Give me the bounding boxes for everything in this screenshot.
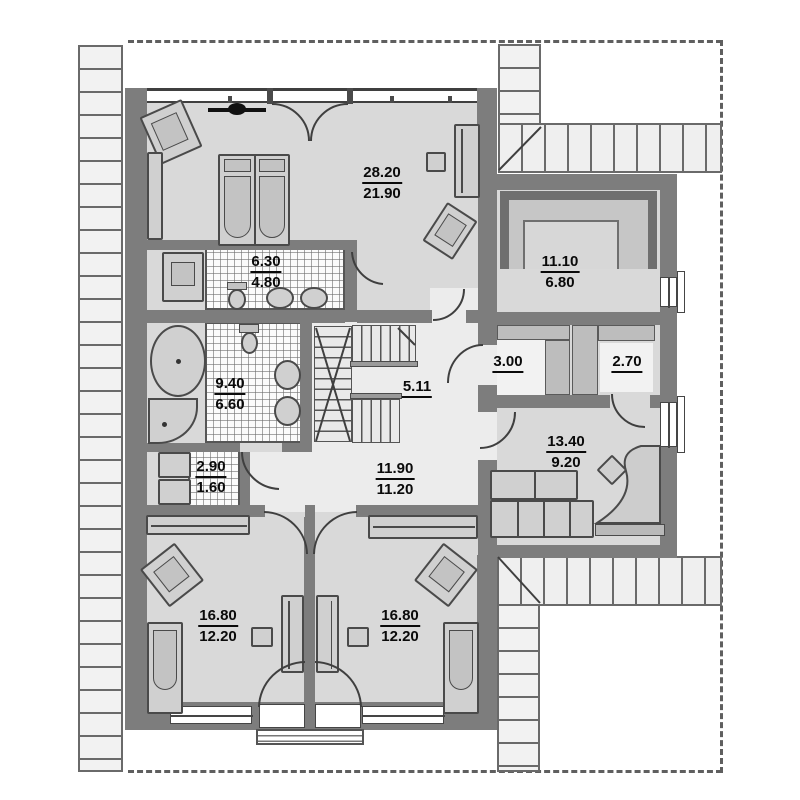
wc-cabinet-1 [158, 452, 191, 478]
stair-flight-lower [352, 399, 400, 443]
wall-light-lens [228, 103, 246, 115]
window-frame-line [668, 403, 670, 448]
sideboard-line [151, 525, 247, 527]
wardrobe-300-right [545, 340, 570, 395]
roof-strip-bottom-horizontal [497, 556, 722, 606]
label-area: 13.40 [546, 432, 586, 453]
wall-right-upper [477, 88, 497, 190]
label-wc: 2.90 1.60 [195, 457, 226, 497]
double-bed [218, 154, 290, 246]
wardrobe-bedroom-top [147, 152, 163, 240]
label-value: 12.20 [199, 628, 237, 645]
wall-bath-top-right [345, 240, 357, 322]
label-area: 2.90 [195, 457, 226, 478]
stair-winder [314, 326, 352, 442]
label-area: 5.11 [402, 377, 432, 398]
wall-spine-2 [357, 310, 432, 323]
desk-edge-line [331, 601, 333, 669]
wall-wing-right-1 [660, 174, 677, 277]
window-frame-line [668, 278, 670, 308]
desk-front-1340 [595, 524, 665, 536]
label-bedroom-left: 16.80 12.20 [198, 606, 238, 646]
wc-cabinet-2 [158, 479, 191, 505]
wall-left [125, 88, 147, 730]
shelf-270-top [598, 325, 655, 341]
mullion-tick-3 [448, 96, 452, 103]
armchair-cushion [428, 556, 464, 592]
bed-pillow-right [259, 159, 285, 172]
label-closet-270: 2.70 [611, 352, 642, 373]
wall-wing-bottom [497, 545, 677, 558]
label-area: 3.00 [492, 352, 523, 373]
wall-bedrooms-divider [304, 517, 315, 707]
wall-bath-main-right [300, 322, 312, 445]
sink-top-2 [300, 287, 328, 309]
wall-hall-bottom-2 [305, 505, 315, 517]
wall-1110-bottom [497, 312, 660, 325]
wall-wing-top [497, 174, 677, 190]
label-bath-top: 6.30 4.80 [250, 252, 281, 292]
label-bedroom-right: 16.80 12.20 [380, 606, 420, 646]
washer-drum [171, 262, 195, 286]
roof-outline-top [128, 40, 722, 43]
sofa-seam [543, 502, 545, 536]
label-area: 2.70 [611, 352, 642, 373]
sideboard-bedroom-right [368, 515, 478, 539]
wall-closet-bottom-2 [650, 395, 660, 408]
label-area: 9.40 [214, 374, 245, 395]
desk-edge-line [461, 129, 463, 193]
label-closet-300: 3.00 [492, 352, 523, 373]
desk-edge-line [288, 601, 290, 669]
door-gap-1340 [478, 412, 497, 460]
stair-rail-upper [350, 361, 418, 367]
bathtub-drain [176, 359, 181, 364]
label-area: 11.90 [376, 459, 415, 480]
sofa-seat-1340 [490, 500, 594, 538]
window-frame-line [363, 715, 445, 717]
window-sill-1110 [677, 271, 685, 313]
label-area: 28.20 [362, 163, 402, 184]
sideboard-line [373, 526, 475, 528]
chair-bedroom-left [251, 627, 273, 647]
label-room-1340: 13.40 9.20 [546, 432, 586, 472]
label-value: 6.80 [545, 274, 574, 291]
desk-living [454, 124, 480, 198]
floor-plan: 28.20 21.90 6.30 4.80 11.10 6.80 9.40 6.… [0, 0, 800, 800]
armchair-cushion [151, 112, 189, 151]
wall-spine-3 [466, 310, 480, 323]
window-wall-top [147, 88, 477, 103]
window-frame-line [171, 715, 253, 717]
wall-wing-left-1 [478, 190, 497, 345]
wardrobe-270-left [572, 325, 598, 395]
bed-bedroom-right [443, 622, 479, 714]
wall-wing-left-2 [478, 385, 497, 412]
bed-blanket [153, 630, 177, 690]
label-value: 11.20 [377, 481, 414, 498]
bed-blanket-right [259, 176, 285, 238]
label-value: 4.80 [251, 274, 280, 291]
wall-bath-main-bottom-2 [282, 443, 312, 452]
label-stair: 5.11 [402, 377, 432, 398]
balcony-door-right [315, 704, 361, 728]
sofa-seam [569, 502, 571, 536]
balcony-door-left [259, 704, 305, 728]
roof-eave-left [78, 45, 123, 772]
window-1340 [660, 402, 677, 447]
sideboard-bedroom-left [146, 515, 250, 535]
sofa-back-1340 [490, 470, 578, 500]
label-value: 21.90 [363, 185, 401, 202]
roof-strip-bottom-vertical [497, 604, 540, 772]
wardrobe-300-top [497, 325, 570, 340]
wall-wing-right-3 [660, 447, 677, 557]
wall-closet-bottom-1 [497, 395, 610, 408]
wall-wing-right-2 [660, 307, 677, 402]
bed-bedroom-left [147, 622, 183, 714]
chair-living [426, 152, 446, 172]
desk-bedroom-right [316, 595, 339, 673]
label-area: 6.30 [250, 252, 281, 273]
label-value: 1.60 [196, 479, 225, 496]
roof-strip-top-vertical [498, 44, 541, 126]
armchair-cushion [153, 556, 189, 592]
chair-bedroom-right [347, 627, 369, 647]
label-room-1110: 11.10 6.80 [541, 252, 580, 292]
window-sill-1340 [677, 396, 685, 453]
label-value: 6.60 [215, 396, 244, 413]
label-value: 12.20 [381, 628, 419, 645]
bed-blanket-left [224, 176, 251, 238]
roof-outline-bottom [128, 770, 722, 773]
wall-bath-main-bottom-1 [125, 443, 240, 452]
door-post-right [347, 88, 353, 104]
bed-blanket [449, 630, 473, 690]
stair-flight-upper [352, 325, 416, 362]
desk-bedroom-left [281, 595, 304, 673]
roof-strip-top-horizontal [498, 123, 722, 173]
sofa-seam [517, 502, 519, 536]
bed-divider [254, 156, 256, 244]
sofa-seam [534, 472, 536, 498]
window-1110 [660, 277, 677, 307]
mullion-tick-2 [390, 96, 394, 103]
label-value: 9.20 [551, 454, 580, 471]
wall-wc-right [240, 452, 250, 512]
label-hall: 11.90 11.20 [376, 459, 415, 499]
label-area: 16.80 [380, 606, 420, 627]
toilet-bowl-main [241, 332, 258, 354]
bed-pillow-left [224, 159, 251, 172]
mullion-tick-1 [228, 96, 232, 103]
shower-drain [162, 422, 167, 427]
window-bottom-right [362, 706, 444, 724]
sink-main-1 [274, 360, 301, 390]
washer-bath-top [162, 252, 204, 302]
wall-spine-1 [125, 310, 345, 323]
terrace-slab [256, 729, 364, 745]
door-post-left [267, 88, 273, 104]
label-area: 11.10 [541, 252, 580, 273]
label-bath-main: 9.40 6.60 [214, 374, 245, 414]
label-area: 16.80 [198, 606, 238, 627]
sink-main-2 [274, 396, 301, 426]
toilet-bowl-top [228, 289, 246, 310]
bathtub [150, 325, 206, 397]
armchair-cushion [434, 213, 467, 247]
label-living: 28.20 21.90 [362, 163, 402, 203]
hall-floor-left [250, 452, 312, 512]
